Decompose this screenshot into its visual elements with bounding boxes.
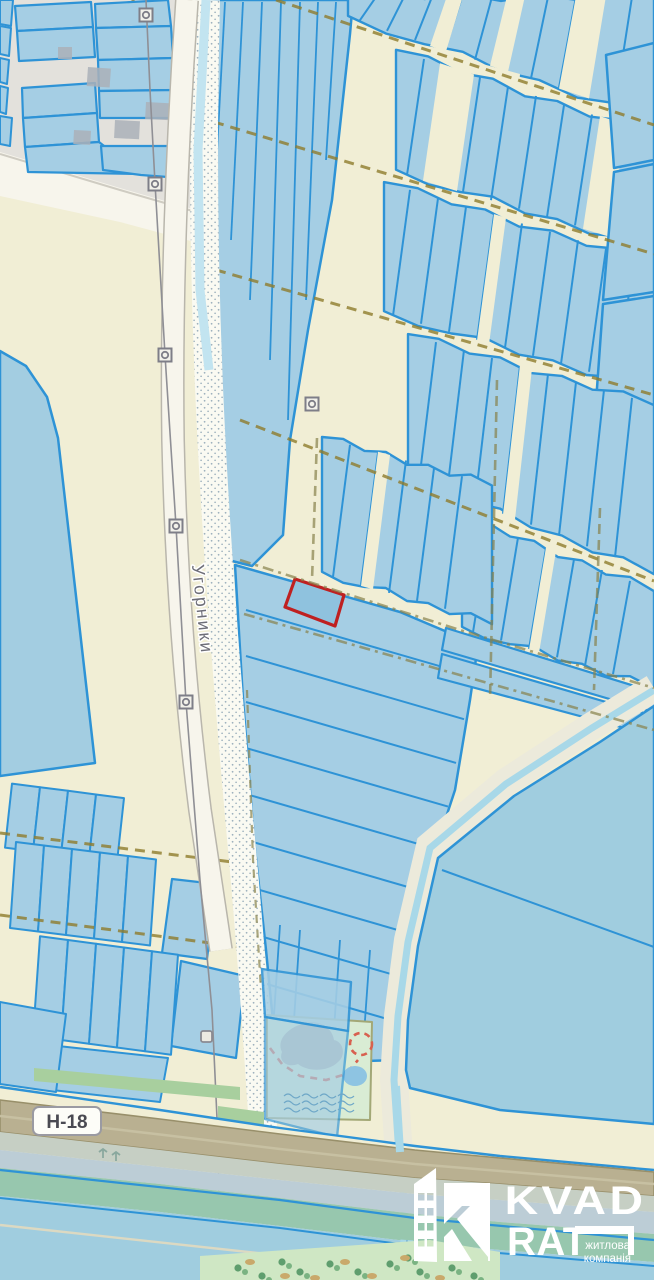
svg-text:компанія: компанія (584, 1253, 631, 1265)
svg-text:KVAD: KVAD (505, 1179, 647, 1223)
svg-text:Н-18: Н-18 (46, 1112, 87, 1133)
svg-text:житлова: житлова (585, 1240, 630, 1252)
